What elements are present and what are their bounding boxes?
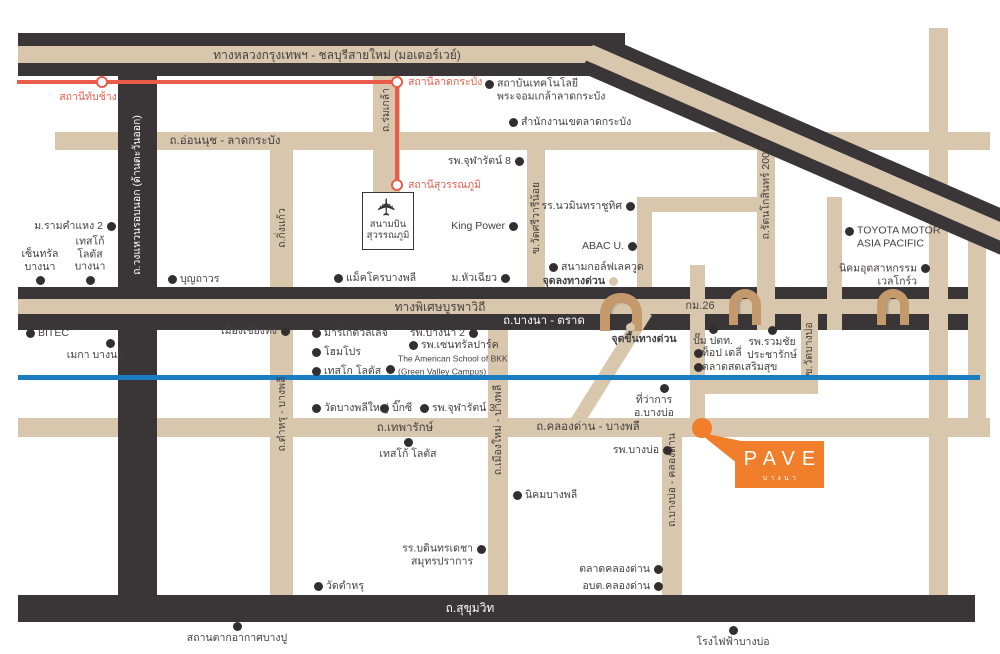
poi-dot <box>768 326 777 335</box>
pave-logo-sub: บางนา <box>735 473 824 483</box>
location-map: สถานีทับช้างสถานีลาดกระบังสถานีสุวรรณภูม… <box>0 0 1000 654</box>
poi-label: ม.รามคำแหง 2 <box>34 220 103 233</box>
poi-label: ตลาดสดเสริมสุข <box>702 361 777 374</box>
road-name-label: ถ.คลองด่าน - บางพลี <box>536 421 639 434</box>
poi-label: เทสโก้ โลตัส <box>379 448 436 461</box>
poi-dot <box>663 446 672 455</box>
poi-label: ABAC U. <box>582 240 624 253</box>
poi-label: เซ็นทรัล บางนา <box>22 248 59 273</box>
poi-label: เทสโก้ โลตัส บางนา <box>75 236 106 274</box>
right-vertical-road-2 <box>968 222 986 428</box>
road-name-label: ข.วัดบางบ่อ <box>803 322 816 375</box>
poi-label: อบต.คลองด่าน <box>583 580 651 593</box>
poi-dot <box>626 202 635 211</box>
poi-label: นิคมอุตสาหกรรม เวลโกร์ว <box>839 263 917 288</box>
poi-dot <box>404 438 413 447</box>
poi-label: เมืองเชียงทง <box>221 325 277 338</box>
poi-dot <box>485 80 494 89</box>
airport-rail-link-line <box>395 80 399 187</box>
poi-label: เทสโก โลตัส <box>324 365 381 378</box>
poi-dot <box>314 582 323 591</box>
poi-label: สำนักงานเขตลาดกระบัง <box>521 116 631 129</box>
rail-station-label: สถานีสุวรรณภูมิ <box>408 179 481 192</box>
poi-dot <box>420 404 429 413</box>
poi-dot <box>513 491 522 500</box>
poi-dot <box>709 325 718 334</box>
poi-dot <box>312 404 321 413</box>
poi-label: มาร์เกตวิลเลจ <box>324 327 388 340</box>
road-name-label: ทางพิเศษบูรพาวิถี <box>395 301 486 314</box>
poi-label: จุดลงทางด่วน <box>543 275 605 288</box>
poi-label: สนามกอล์ฟเลควูด <box>561 261 644 274</box>
road-name-label: ถ.เมืองใหม่ - บางพลี <box>492 385 505 476</box>
poi-label: บิ๊กซี <box>392 402 412 415</box>
rail-station-marker <box>391 76 403 88</box>
poi-dot <box>168 275 177 284</box>
road-name-label: ถ.อ่อนนุช - ลาดกระบัง <box>170 135 281 148</box>
road-name-label: ถ.ตำหรุ - บางพลี <box>276 377 289 452</box>
poi-dot <box>380 404 389 413</box>
road-name-label: ถ.กิ่งแก้ว <box>276 208 289 248</box>
poi-label: สถาบันเทคโนโลยี พระจอมเกล้าลาดกระบัง <box>497 78 605 103</box>
pave-logo-word: PAVE <box>735 448 824 471</box>
sukhumvit-road <box>18 595 975 622</box>
poi-dot <box>628 242 637 251</box>
rail-station-label: สถานีลาดกระบัง <box>408 76 482 89</box>
poi-label: TOYOTA MOTOR ASIA PACIFIC <box>857 225 940 250</box>
poi-label: รพ.จุฬารัตน์ 8 <box>448 155 511 168</box>
road-name-label: ข.วัดศรีวารีน้อย <box>530 182 543 254</box>
poi-dot <box>626 323 635 332</box>
poi-label: วัดตำหรุ <box>326 580 364 593</box>
poi-dot <box>386 365 395 374</box>
motorway-edge-top <box>18 33 625 46</box>
poi-label: King Power <box>451 220 505 233</box>
pave-logo: PAVE บางนา <box>735 441 824 488</box>
airport-rail-link-line <box>17 80 399 84</box>
watbangbo-road-elbow <box>700 380 818 394</box>
poi-label: รพ.บางบ่อ <box>613 444 659 457</box>
poi-dot <box>921 264 930 273</box>
right-vertical-road-1 <box>929 28 948 595</box>
poi-dot <box>609 277 618 286</box>
poi-dot <box>106 339 115 348</box>
poi-dot <box>334 274 343 283</box>
poi-label: ท็อป เดลี่ <box>702 347 742 360</box>
poi-dot <box>501 274 510 283</box>
poi-dot <box>312 367 321 376</box>
poi-label: รร.นวมินทราชูทิศ <box>541 200 622 213</box>
uturn-icon-3 <box>877 289 909 325</box>
poi-dot <box>107 222 116 231</box>
poi-label: โรงไฟฟ้าบางบ่อ <box>696 636 769 649</box>
poi-dot <box>515 157 524 166</box>
poi-dot <box>845 227 854 236</box>
rail-station-label: สถานีทับช้าง <box>59 91 117 104</box>
poi-label: บุญถาวร <box>180 273 219 286</box>
road-name-label: ถ.บางนา - ตราด <box>503 315 585 328</box>
poi-dot <box>312 348 321 357</box>
poi-label: สถานตากอากาศบางปู <box>187 632 287 645</box>
poi-label: จุดขึ้นทางด่วน <box>611 333 676 346</box>
road-name-label: ถ.เทพารักษ์ <box>377 422 433 435</box>
poi-dot <box>281 327 290 336</box>
poi-label: นิคมบางพลี <box>525 489 577 502</box>
poi-dot <box>654 582 663 591</box>
airport-label: สนามบิน สุวรรณภูมิ <box>363 219 413 241</box>
poi-label: ที่ว่าการ อ.บางบ่อ <box>634 394 674 419</box>
poi-label: รพ.บางนา 2 <box>410 327 465 340</box>
poi-dot <box>86 276 95 285</box>
poi-label: แม็คโครบางพลี <box>346 272 416 285</box>
uturn-icon-1 <box>600 293 642 331</box>
poi-dot <box>660 384 669 393</box>
motorway-edge-bottom <box>18 63 625 76</box>
poi-label: รพ.รวมชัย ประชารักษ์ <box>747 336 797 361</box>
poi-dot <box>409 341 418 350</box>
poi-label: The American School of BKK (Green Valley… <box>398 353 508 378</box>
poi-dot <box>509 118 518 127</box>
poi-dot <box>654 565 663 574</box>
poi-label: ตลาดคลองด่าน <box>579 563 650 576</box>
poi-dot <box>509 222 518 231</box>
link-road-vertical <box>637 197 652 300</box>
link-road-horizontal <box>637 197 775 212</box>
poi-dot <box>469 329 478 338</box>
poi-dot <box>477 545 486 554</box>
uturn-icon-2 <box>729 289 761 325</box>
airplane-icon: ✈ <box>376 197 400 217</box>
poi-label: ม.หัวเฉียว <box>452 272 497 285</box>
rail-station-marker <box>391 179 403 191</box>
poi-label: รพ.จุฬารัตน์ 3 <box>432 402 495 415</box>
road-name-label: ทางหลวงกรุงเทพฯ - ชลบุรีสายใหม่ (มอเตอร์… <box>213 49 460 62</box>
poi-label: รพ.เซนทรัลปาร์ค <box>421 339 499 352</box>
poi-label: รร.บดินทรเดชา สมุทรปราการ <box>402 543 473 568</box>
poi-dot <box>729 626 738 635</box>
road-name-label: ถ.วงแหวนรอบนอก (ด้านตะวันออก) <box>131 115 144 275</box>
poi-dot <box>36 276 45 285</box>
poi-label: โฮมโปร <box>324 346 361 359</box>
road-name-label: ถ.ร่มเกล้า <box>380 88 393 132</box>
poi-dot <box>233 622 242 631</box>
poi-dot <box>312 329 321 338</box>
poi-label: BITEC <box>38 327 69 340</box>
suvarnabhumi-airport-box: ✈ สนามบิน สุวรรณภูมิ <box>362 192 414 250</box>
poi-label: ปั๊ม ปตท. <box>693 335 733 348</box>
road-name-label: ถ.สุขุมวิท <box>446 602 495 615</box>
road-name-label: ถ.รัตนโกสินทร์ 200 ปี <box>760 142 773 239</box>
rail-station-marker <box>96 76 108 88</box>
kingkaew-tamru-road <box>270 132 293 595</box>
poi-label: เมกา บางนา <box>67 349 123 362</box>
road-name-label: กม.26 <box>685 300 714 313</box>
poi-dot <box>549 263 558 272</box>
poi-dot <box>26 329 35 338</box>
